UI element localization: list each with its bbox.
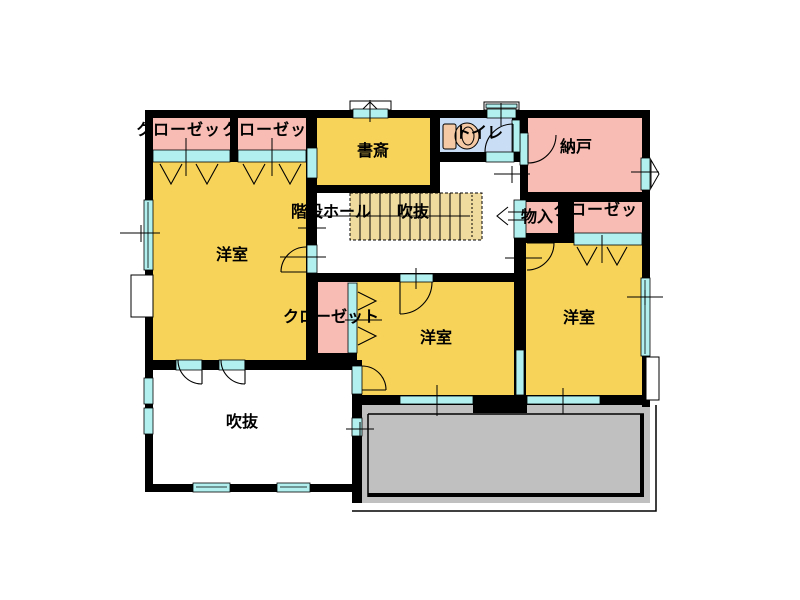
label-bedroom-center: 洋室: [420, 331, 452, 347]
window: [641, 158, 650, 190]
label-closet-ne: クローゼッ: [553, 203, 638, 219]
window: [144, 200, 153, 270]
window: [277, 483, 310, 492]
door-opening: [307, 148, 317, 178]
label-closet-center: クローゼット: [283, 310, 379, 326]
door-opening: [516, 350, 524, 395]
window: [641, 278, 650, 356]
floor-plan-drawing: [0, 0, 800, 600]
door-opening: [520, 133, 528, 165]
balcony: [362, 405, 650, 503]
window: [144, 378, 153, 404]
label-storeroom: 納戸: [560, 140, 592, 156]
label-closet-nw2: クローゼッ: [222, 123, 307, 139]
label-stair-hall: 階段ホール: [291, 205, 371, 221]
label-stair-void: 吹抜: [397, 205, 429, 221]
closet-track: [574, 233, 642, 245]
label-bedroom-west: 洋室: [216, 248, 248, 264]
label-void: 吹抜: [226, 415, 258, 431]
window: [193, 483, 230, 492]
floor-plan-canvas: クローゼッ クローゼッ 書斎 トイレ 納戸 階段ホール 吹抜 物入 クローゼッ …: [0, 0, 800, 600]
label-closet-nw1: クローゼッ: [136, 123, 221, 139]
label-bedroom-east: 洋室: [563, 311, 595, 327]
label-study: 書斎: [357, 144, 389, 160]
window: [144, 408, 153, 434]
closet-track: [153, 150, 230, 162]
door-opening: [486, 152, 514, 162]
label-storage: 物入: [521, 210, 553, 226]
label-toilet: トイレ: [455, 126, 503, 142]
door-opening: [352, 366, 362, 394]
door-opening: [307, 245, 317, 273]
bay-triangle-storeroom: [651, 160, 659, 188]
